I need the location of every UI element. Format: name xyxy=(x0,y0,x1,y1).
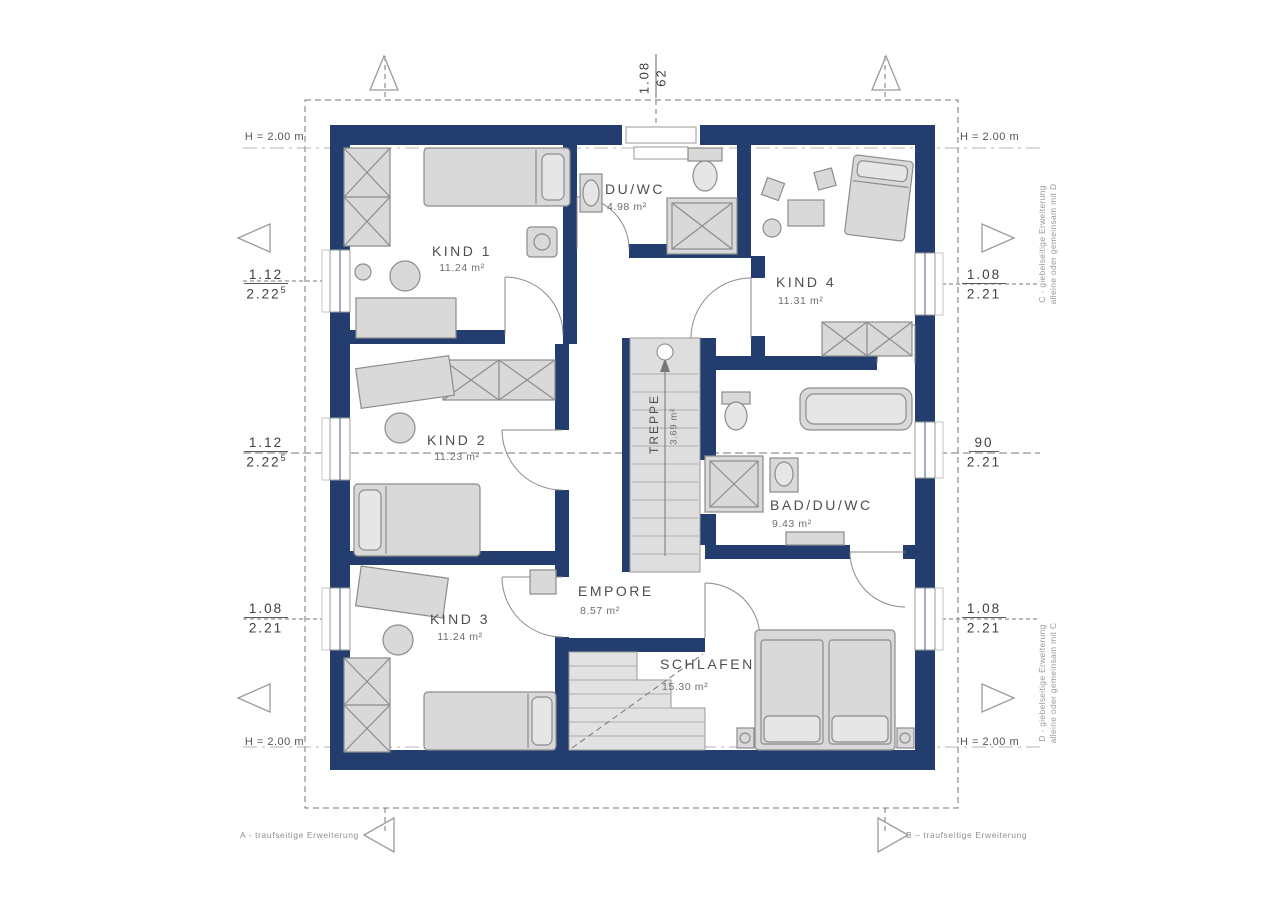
wall-left-3 xyxy=(330,480,350,588)
room-area-kind1: 11.24 m² xyxy=(410,262,514,274)
room-area-treppe: 3.69 m² xyxy=(669,377,680,477)
dim-right-1: 1.08 2.21 xyxy=(950,267,1018,302)
room-label-kind2: KIND 2 xyxy=(405,432,509,448)
bed-kind1 xyxy=(424,148,570,206)
wall-top-right xyxy=(700,125,935,145)
wall-right-3 xyxy=(915,478,935,588)
door-bad xyxy=(850,552,905,607)
height-label-top-left: H = 2.00 m xyxy=(212,131,304,143)
wall-right-2 xyxy=(915,315,935,422)
wardrobe-kind2 xyxy=(443,360,555,400)
wall-bad-left-b xyxy=(700,514,716,545)
wall-stairs-left xyxy=(622,338,630,572)
wall-kind4-bottom xyxy=(705,356,877,370)
note-extension-c: C - giebelseitige Erweiterung alleine od… xyxy=(1037,164,1059,324)
toilet-bad xyxy=(722,392,750,430)
marker-triangle-bottom-left xyxy=(364,818,394,852)
dim-left-2-den: 2.225 xyxy=(246,452,285,470)
chair-kind4-a xyxy=(761,177,784,200)
note-extension-a: A - traufseitige Erweiterung xyxy=(240,830,359,840)
dim-left-2-num: 1.12 xyxy=(244,435,288,452)
sink-bad xyxy=(770,458,798,492)
toilet-duwc xyxy=(688,148,722,191)
room-label-kind1: KIND 1 xyxy=(410,243,514,259)
wall-left-2 xyxy=(330,312,350,418)
room-label-duwc: DU/WC xyxy=(605,181,665,197)
dim-right-3-den: 2.21 xyxy=(967,618,1001,636)
room-label-kind4: KIND 4 xyxy=(776,274,836,290)
wall-kind3-right-b xyxy=(555,637,569,760)
note-c-line2: alleine oder gemeinsam mit D xyxy=(1048,164,1059,324)
note-extension-b: B – traufseitige Erweiterung xyxy=(906,830,1027,840)
marker-triangle-right-upper xyxy=(982,224,1014,252)
bed-kind2 xyxy=(354,484,480,556)
dim-right-2-num: 90 xyxy=(969,435,998,452)
room-area-kind3: 11.24 m² xyxy=(408,631,512,643)
table-kind4 xyxy=(788,200,824,226)
chair-kind4-b xyxy=(814,168,836,190)
note-d-line1: D - giebelseitige Erweiterung xyxy=(1037,603,1048,763)
note-d-line2: alleine oder gemeinsam mit C xyxy=(1048,603,1059,763)
room-area-bad: 9.43 m² xyxy=(772,518,812,530)
dim-left-1: 1.12 2.225 xyxy=(232,267,300,302)
cabinet-bad xyxy=(786,532,844,545)
door-schlafen xyxy=(705,583,760,638)
dim-right-1-den: 2.21 xyxy=(967,284,1001,302)
room-label-kind3: KIND 3 xyxy=(408,611,512,627)
wall-kind2-right-a xyxy=(555,344,569,430)
side-table-kind3 xyxy=(530,570,556,594)
dim-top-den: 62 xyxy=(654,55,669,101)
room-area-kind2: 11.23 m² xyxy=(405,451,509,463)
room-label-bad: BAD/DU/WC xyxy=(770,497,873,513)
sink-duwc xyxy=(580,174,602,212)
window-kind3 xyxy=(322,588,350,650)
marker-triangle-left-upper xyxy=(238,224,270,252)
door-kind4-hall xyxy=(691,278,751,338)
marker-triangle-right-lower xyxy=(982,684,1014,712)
room-area-empore: 8.57 m² xyxy=(580,605,620,617)
height-label-top-right: H = 2.00 m xyxy=(960,131,1052,143)
stool-kind4 xyxy=(763,219,781,237)
desk-kind2 xyxy=(356,356,455,409)
roof-window-sill xyxy=(634,147,688,159)
wall-kind2-right-b xyxy=(555,490,569,551)
wall-kind4-left-a xyxy=(751,256,765,278)
nightstand-left xyxy=(737,728,754,748)
marker-triangle-top-right xyxy=(872,56,900,90)
dim-left-1-num: 1.12 xyxy=(244,267,288,284)
window-kind2 xyxy=(322,418,350,480)
wall-bottom xyxy=(330,750,935,770)
dim-left-2: 1.12 2.225 xyxy=(232,435,300,470)
wall-stairs-right xyxy=(700,338,716,370)
marker-triangle-left-lower xyxy=(238,684,270,712)
dim-right-2-den: 2.21 xyxy=(967,452,1001,470)
room-area-schlafen: 15.30 m² xyxy=(662,681,708,693)
wall-duwc-right xyxy=(737,145,751,244)
door-kind1 xyxy=(505,277,563,335)
shower-bad xyxy=(705,456,763,512)
wardrobe-kind4 xyxy=(822,322,912,356)
floorplan-page: { "plan": { "rooms": { "kind1": {"name":… xyxy=(0,0,1280,906)
dim-left-3: 1.08 2.21 xyxy=(232,601,300,636)
bathtub xyxy=(800,388,912,430)
dim-top-num: 1.08 xyxy=(637,46,652,110)
floorplan-drawing xyxy=(0,0,1280,906)
wardrobe-kind1 xyxy=(344,148,390,246)
dim-right-3-num: 1.08 xyxy=(962,601,1006,618)
room-label-treppe: TREPPE xyxy=(647,374,661,474)
staircase xyxy=(630,338,700,572)
cabinet-kind1 xyxy=(527,227,557,257)
note-extension-d: D - giebelseitige Erweiterung alleine od… xyxy=(1037,603,1059,763)
wardrobe-kind3 xyxy=(344,658,390,752)
marker-triangle-top-left xyxy=(370,56,398,90)
wall-bad-left-a xyxy=(700,370,716,460)
wall-kind3-right-a xyxy=(555,565,569,577)
window-kind1 xyxy=(322,250,350,312)
room-label-schlafen: SCHLAFEN xyxy=(660,656,755,672)
dim-right-1-num: 1.08 xyxy=(962,267,1006,284)
roof-window-frame xyxy=(626,127,696,143)
room-area-duwc: 4.98 m² xyxy=(607,201,647,213)
dim-right-2: 90 2.21 xyxy=(950,435,1018,470)
room-label-empore: EMPORE xyxy=(578,583,654,599)
wall-right-1 xyxy=(915,125,935,253)
wall-top-left xyxy=(330,125,622,145)
dim-left-3-num: 1.08 xyxy=(244,601,288,618)
bed-kind4 xyxy=(844,155,913,242)
room-area-kind4: 11.31 m² xyxy=(778,295,823,307)
shower-duwc xyxy=(667,198,737,254)
bed-kind3 xyxy=(424,692,556,750)
height-label-bottom-left: H = 2.00 m xyxy=(212,736,304,748)
window-kind4 xyxy=(915,253,943,315)
wall-empore-schlafen xyxy=(555,638,705,652)
door-kind2 xyxy=(502,430,562,490)
window-bad xyxy=(915,422,943,478)
double-bed xyxy=(755,630,895,750)
dim-left-1-den: 2.225 xyxy=(246,284,285,302)
wall-bad-bottom-a xyxy=(705,545,850,559)
window-schlafen xyxy=(915,588,943,650)
note-c-line1: C - giebelseitige Erweiterung xyxy=(1037,164,1048,324)
nightstand-right xyxy=(897,728,914,748)
stair-start-circle xyxy=(657,344,673,360)
dim-left-3-den: 2.21 xyxy=(249,618,283,636)
marker-triangle-bottom-right xyxy=(878,818,908,852)
dim-right-3: 1.08 2.21 xyxy=(950,601,1018,636)
